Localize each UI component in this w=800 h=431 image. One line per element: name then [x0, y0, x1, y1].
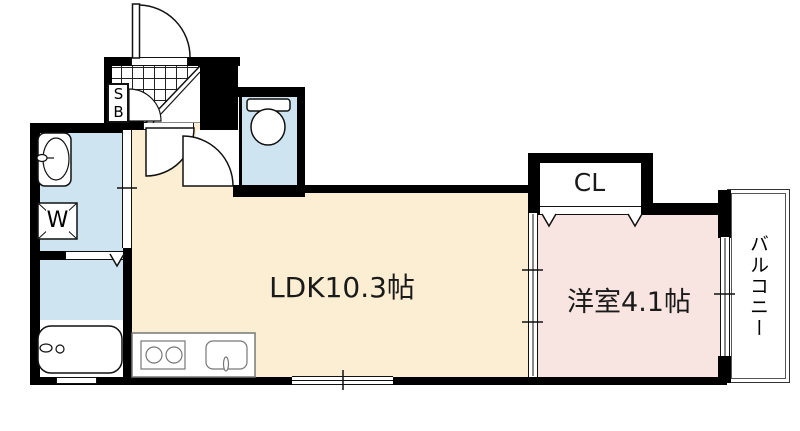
floorplan-canvas: バルコニー: [0, 0, 800, 431]
washer-label: W: [46, 210, 70, 232]
shoebox-label: SB: [111, 85, 126, 121]
closet-label: CL: [538, 168, 641, 197]
bedroom-label: 洋室4.1帖: [536, 280, 722, 319]
toilet-bowl: [251, 109, 285, 145]
closet-door-chevron-1: [542, 214, 556, 226]
closet-door-chevron-2: [628, 214, 642, 226]
ldk-label: LDK10.3帖: [232, 266, 452, 306]
bathtub-drain: [56, 345, 64, 353]
stove-burner-left: [146, 347, 162, 363]
bathtub-tap: [40, 344, 52, 352]
fixtures-overlay: [0, 0, 800, 431]
washbasin-tap: [37, 155, 47, 162]
bathroom-door-chevron: [110, 254, 124, 266]
shoebox-door-swing: [129, 89, 161, 121]
toilet-door-swing: [183, 136, 233, 186]
entrance-door-leaf: [133, 4, 140, 58]
stove-burner-right: [166, 347, 182, 363]
sink-faucet: [224, 357, 229, 371]
washer: W: [38, 203, 77, 239]
entrance-door-swing-arc: [140, 5, 191, 57]
shoebox: SB: [107, 83, 129, 123]
